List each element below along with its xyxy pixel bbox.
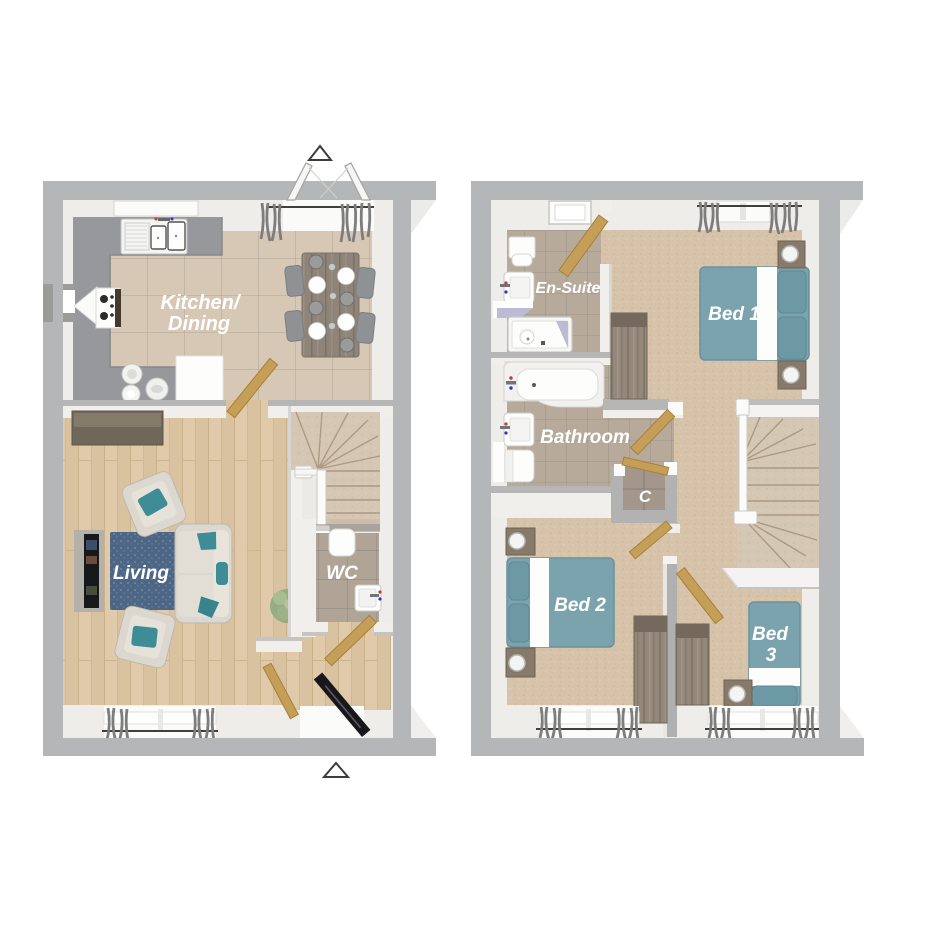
svg-text:Kitchen/: Kitchen/ bbox=[161, 292, 242, 314]
svg-text:Bed 2: Bed 2 bbox=[554, 595, 606, 616]
svg-text:En-Suite: En-Suite bbox=[536, 280, 601, 297]
svg-text:3: 3 bbox=[766, 645, 777, 666]
svg-text:Dining: Dining bbox=[168, 313, 230, 335]
svg-text:Living: Living bbox=[113, 563, 169, 584]
svg-text:Bed: Bed bbox=[752, 624, 788, 645]
svg-text:Bathroom: Bathroom bbox=[540, 427, 630, 448]
svg-text:C: C bbox=[639, 487, 652, 506]
svg-text:Bed 1: Bed 1 bbox=[708, 304, 760, 325]
svg-text:WC: WC bbox=[326, 563, 358, 584]
